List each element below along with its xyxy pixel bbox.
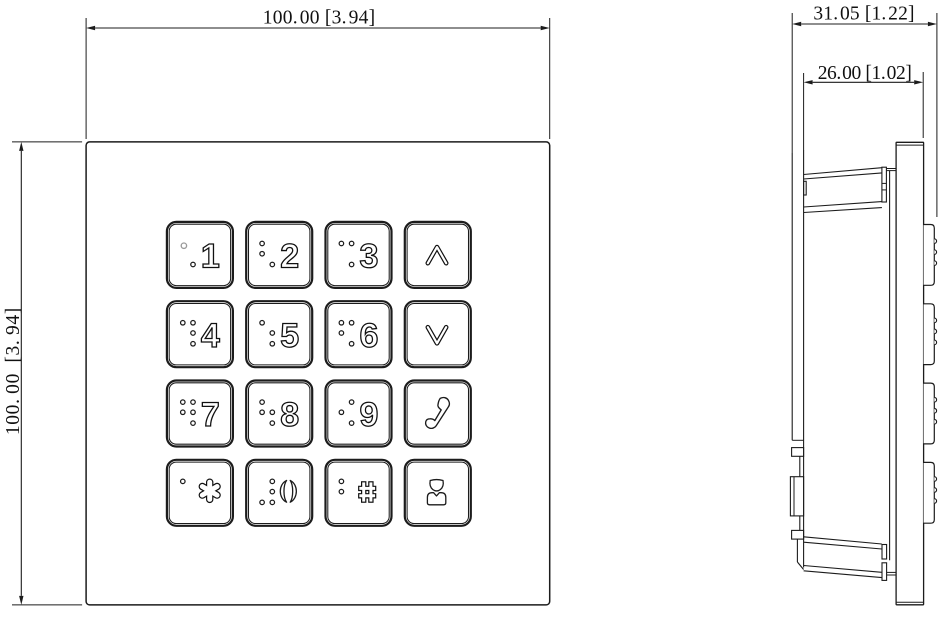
svg-text:2: 2 <box>280 238 299 276</box>
svg-text:100. 00 [3. 94]: 100. 00 [3. 94] <box>3 307 24 435</box>
svg-text:26. 00 [1. 02]: 26. 00 [1. 02] <box>818 63 912 84</box>
svg-text:9: 9 <box>360 396 379 434</box>
svg-text:8: 8 <box>280 396 299 434</box>
svg-text:1: 1 <box>201 238 220 276</box>
svg-text:100. 00 [3. 94]: 100. 00 [3. 94] <box>263 8 376 29</box>
svg-text:4: 4 <box>201 317 220 355</box>
svg-text:6: 6 <box>360 317 379 355</box>
svg-text:31. 05 [1. 22]: 31. 05 [1. 22] <box>813 3 914 24</box>
svg-text:7: 7 <box>201 396 220 434</box>
svg-text:5: 5 <box>280 317 299 355</box>
svg-text:3: 3 <box>360 238 379 276</box>
